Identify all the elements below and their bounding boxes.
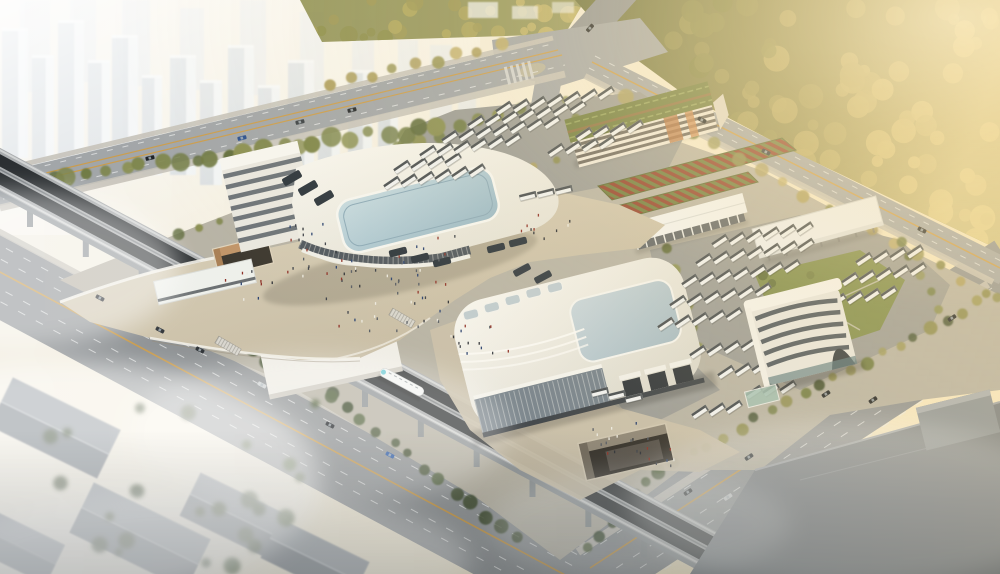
rendering-canvas: Aerial architectural rendering of a mode… — [0, 0, 1000, 574]
aerial-rendering: Aerial architectural rendering of a mode… — [0, 0, 1000, 574]
bottom-vignette — [0, 430, 1000, 574]
